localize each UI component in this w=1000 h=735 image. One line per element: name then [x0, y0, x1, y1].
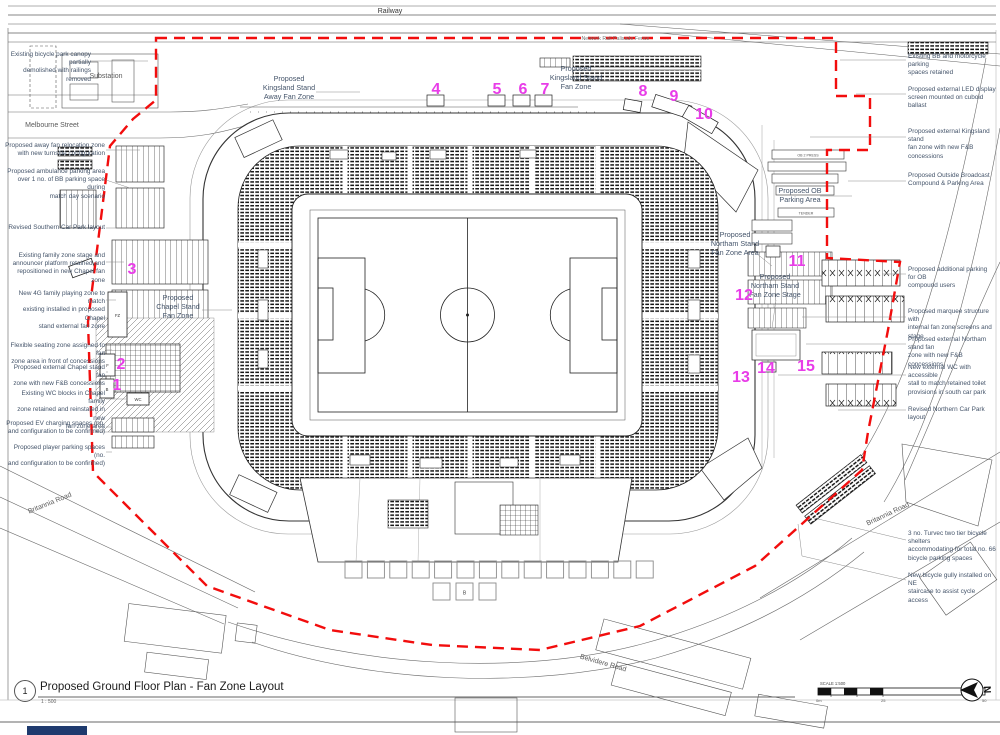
- fan-zone-marker-8: 8: [639, 83, 648, 101]
- fan-zone-marker-15: 15: [797, 358, 815, 376]
- annotation-note: Flexible seating zone assigned to fan zo…: [5, 342, 105, 367]
- detail-number-circle: 1: [14, 680, 36, 702]
- annotation-note: Proposed player parking spaces (no. and …: [5, 444, 105, 469]
- annotation-note: 3 no. Turvec two tier bicycle shelters a…: [908, 530, 998, 563]
- annotation-note: Proposed EV charging spaces (no. and con…: [5, 420, 105, 436]
- title-block-blue-bar: [27, 726, 87, 735]
- floor-plan-sheet: B FZ F B WC: [0, 0, 1000, 735]
- svg-text:50: 50: [982, 698, 987, 703]
- fan-zone-marker-10: 10: [695, 106, 713, 124]
- svg-text:N: N: [981, 686, 992, 694]
- annotation-note: Existing family zone stage and announcer…: [5, 252, 105, 285]
- annotation-note: Proposed ambulance parking area over 1 n…: [5, 168, 105, 201]
- annotation-note: Revised Southern Car Park layout: [5, 224, 105, 232]
- chapel-fan-zone-label: Proposed Chapel Stand Fan Zone: [128, 293, 228, 320]
- palisade-fence-label: Network Rail Palisade Fence: [558, 36, 673, 42]
- site-plan-drawing: B FZ F B WC: [0, 0, 1000, 735]
- svg-text:WC: WC: [135, 397, 142, 402]
- svg-text:B: B: [106, 387, 109, 392]
- fan-zone-marker-11: 11: [789, 253, 806, 271]
- south-concourse: [300, 478, 632, 562]
- annotation-note: Proposed away fan relocation zone with n…: [5, 142, 105, 158]
- sheet-scale: 1 : 500: [41, 699, 56, 705]
- fan-zone-marker-4: 4: [432, 81, 441, 99]
- annotation-note: New external WC with accessible stall to…: [908, 364, 996, 397]
- fan-zone-marker-5: 5: [493, 81, 502, 99]
- fan-zone-marker-6: 6: [519, 81, 528, 99]
- planter-b-label: B: [463, 591, 467, 597]
- svg-text:TENDER: TENDER: [799, 212, 814, 216]
- fan-zone-marker-9: 9: [670, 88, 679, 106]
- railway-label: Railway: [355, 8, 425, 15]
- northam-fan-zone-area-label: Proposed Northam Stand Fan Zone Area: [690, 230, 780, 257]
- fan-zone-marker-2: 2: [117, 356, 126, 374]
- annotation-note: Revised Northern Car Park layout: [908, 406, 996, 422]
- kingsland-away-fan-zone-label: Proposed Kingsland Stand Away Fan Zone: [239, 74, 339, 101]
- ob-parking-area-label: Proposed OB Parking Area: [755, 186, 845, 204]
- annotation-note: Proposed additional parking for OB compo…: [908, 266, 996, 291]
- annotation-note: Proposed external LED display screen mou…: [908, 86, 996, 111]
- annotation-note: Existing BB and motorcycle parking space…: [908, 53, 996, 78]
- melbourne-street-label: Melbourne Street: [12, 122, 92, 129]
- svg-text:0m: 0m: [816, 698, 822, 703]
- annotation-note: Proposed external Chapel stand fan zone …: [5, 364, 105, 389]
- annotation-note: Proposed external Kingsland stand fan zo…: [908, 128, 996, 161]
- svg-text:SCALE 1:500: SCALE 1:500: [820, 681, 846, 686]
- sheet-title: Proposed Ground Floor Plan - Fan Zone La…: [40, 681, 284, 693]
- fan-zone-marker-3: 3: [128, 261, 137, 279]
- fan-zone-marker-14: 14: [757, 360, 775, 378]
- football-pitch: [292, 194, 642, 436]
- fan-zone-marker-13: 13: [732, 369, 750, 387]
- annotation-note: Existing bicycle park canopy partially d…: [5, 51, 91, 84]
- annotation-note: New 4G family playing zone to match exis…: [5, 290, 105, 331]
- annotation-note: Proposed Outside Broadcast Compound & Pa…: [908, 172, 996, 188]
- fan-zone-marker-7: 7: [541, 81, 550, 99]
- planter-squares: [345, 561, 653, 600]
- fan-zone-marker-12: 12: [735, 287, 753, 305]
- north-arrow-icon: N: [960, 679, 992, 701]
- svg-text:25: 25: [881, 698, 886, 703]
- svg-text:OB 2 PRESS: OB 2 PRESS: [797, 154, 819, 158]
- svg-text:F: F: [106, 363, 109, 368]
- svg-text:FZ: FZ: [115, 313, 121, 318]
- fan-zone-marker-1: 1: [113, 377, 122, 395]
- annotation-note: New bicycle gully installed on NE stairc…: [908, 572, 996, 605]
